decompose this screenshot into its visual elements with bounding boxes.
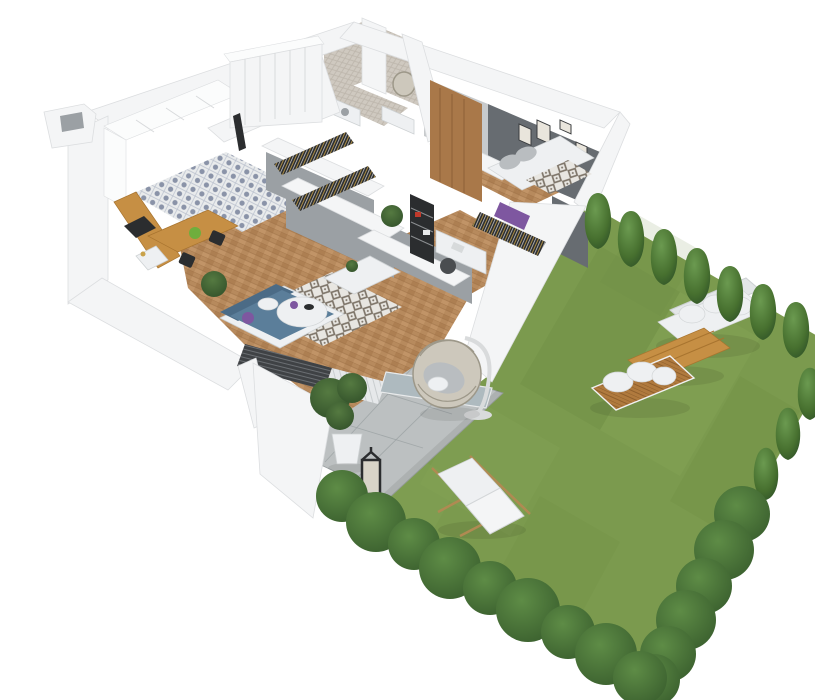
shelf-red-box (415, 212, 421, 217)
dark-bowl (304, 304, 314, 310)
green-bowl (189, 227, 201, 239)
shelf-white-box (423, 230, 430, 235)
seat-cushion (652, 367, 676, 385)
conifer-tree (651, 229, 677, 285)
conifer-tree (717, 266, 743, 322)
purple-vase (290, 301, 298, 309)
purple-cushion (242, 312, 254, 324)
floor-plan-figure: Photorealistic 3D isometric cutaway floo… (40, 16, 815, 700)
wood-wardrobe (430, 80, 482, 202)
floor-plan-render (40, 16, 815, 700)
conifer-tree (618, 211, 644, 267)
black-shelf-unit (410, 194, 434, 264)
conifer-tree (750, 284, 776, 340)
conifer-tree (783, 302, 809, 358)
plant-foliage (326, 402, 354, 430)
dining-plant (201, 271, 227, 297)
chair-pillow (428, 377, 448, 391)
desk-chair (440, 258, 456, 274)
sofa-white-cushion (258, 298, 278, 310)
entry-hall (224, 36, 324, 151)
closet-plant (381, 205, 403, 227)
picture-frame (560, 120, 571, 134)
kitchen-tall-cabinet (104, 128, 126, 208)
washer-door (341, 108, 349, 116)
media-unit-plant (346, 260, 358, 272)
conifer-tree (776, 408, 800, 460)
plant-foliage (337, 373, 367, 403)
conifer-tree (585, 193, 611, 249)
conifer-tree (684, 248, 710, 304)
seat-pillow (679, 305, 705, 323)
coffee-table-round (277, 297, 327, 327)
gold-tap (141, 252, 146, 257)
white-planter (332, 434, 362, 464)
